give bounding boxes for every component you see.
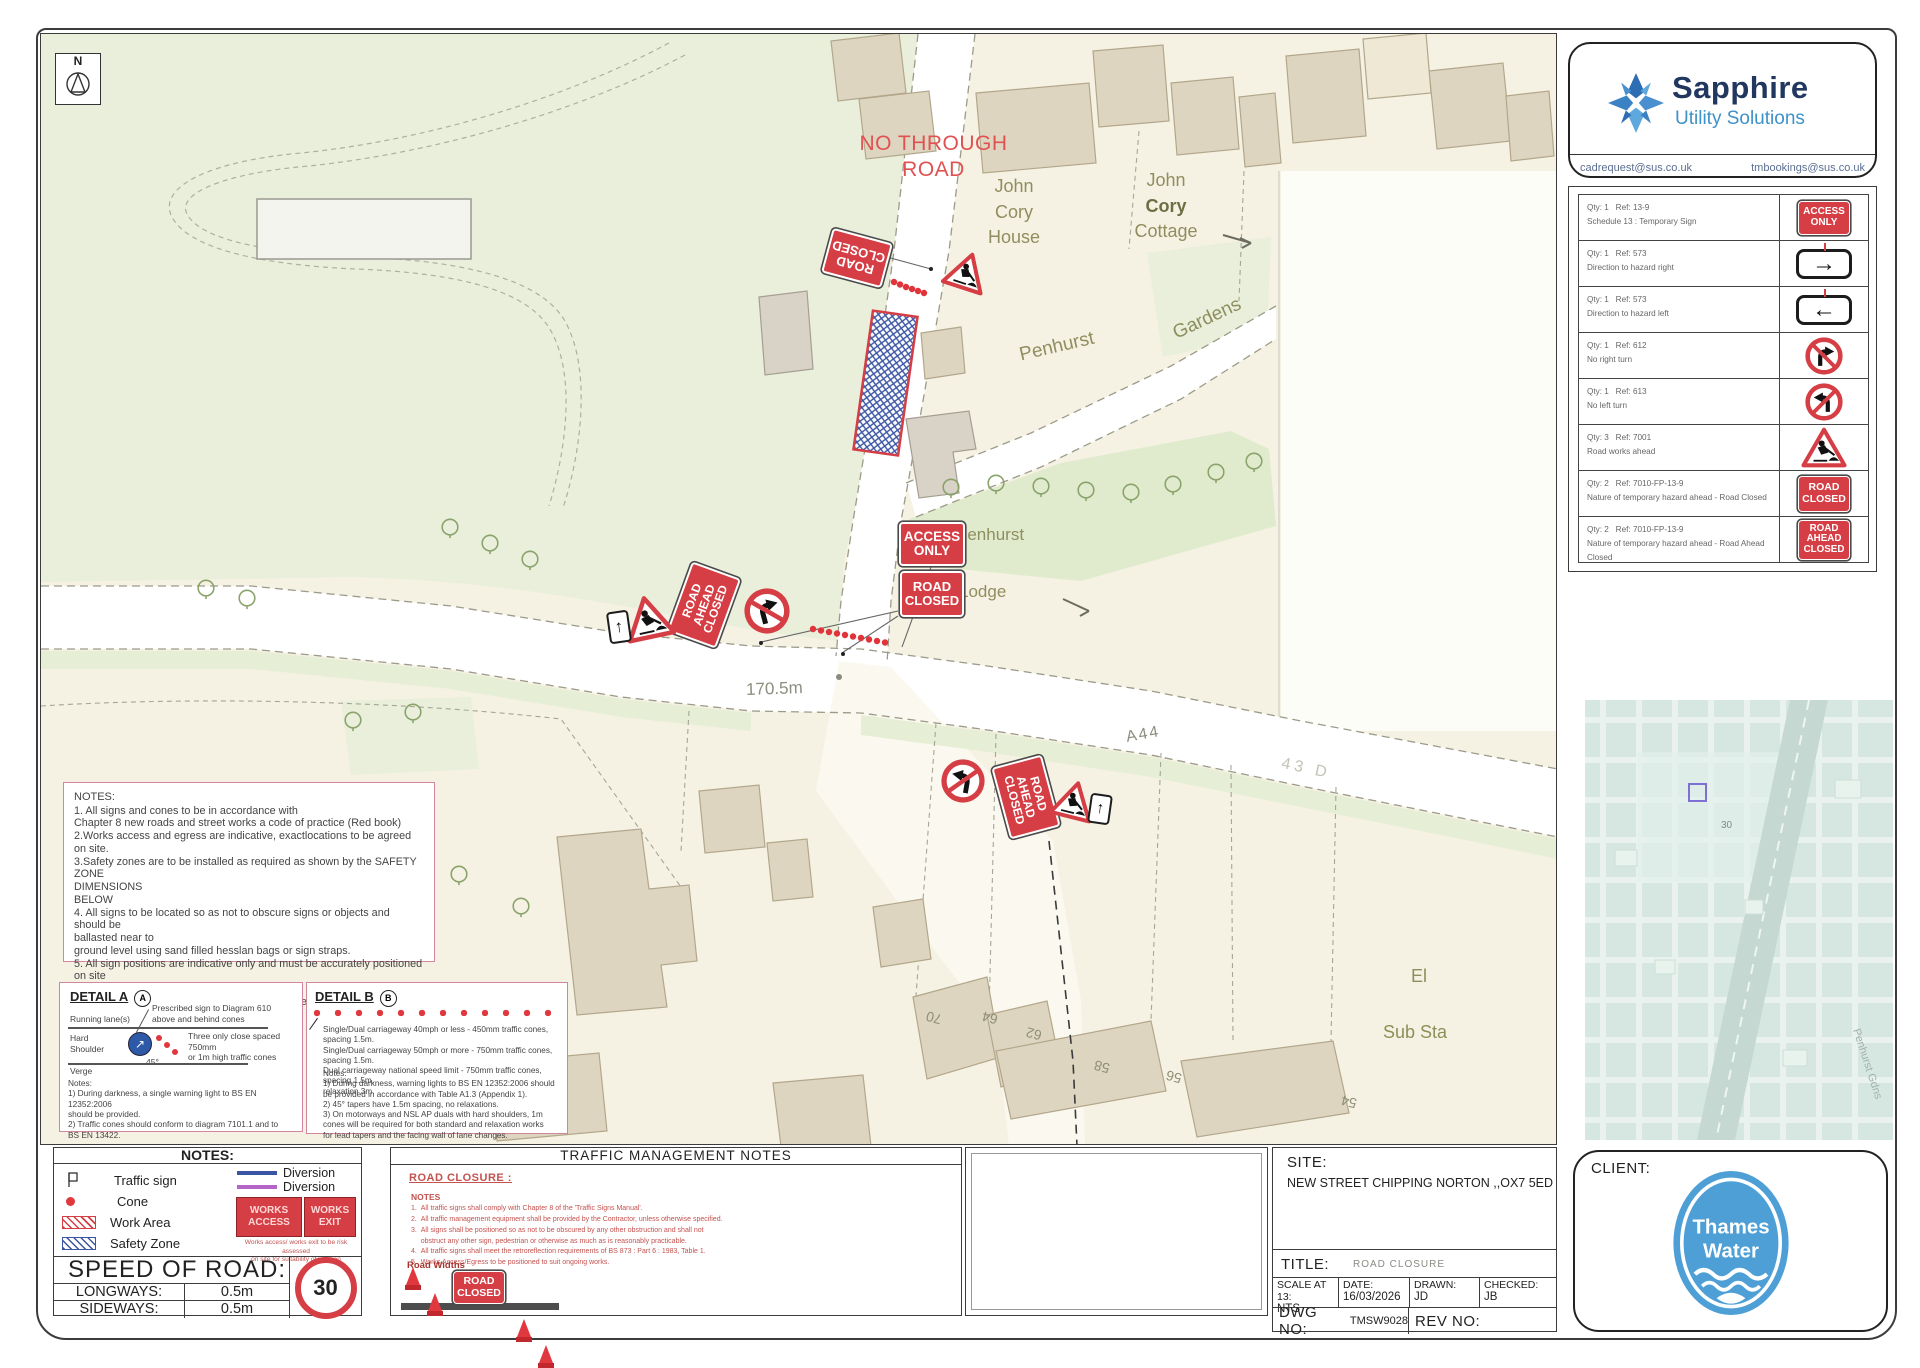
schedule-desc: No left turn: [1587, 399, 1779, 413]
distance-label: 170.5m: [746, 678, 803, 700]
schedule-desc: Nature of temporary hazard ahead - Road …: [1587, 491, 1779, 505]
cone-icon: [405, 1264, 421, 1290]
works-access-box: WORKSACCESS: [236, 1197, 302, 1237]
map-notes-box: NOTES: 1. All signs and cones to be in a…: [63, 782, 435, 962]
schedule-row: Qty: 2 Ref: 7010-FP-13-9Nature of tempor…: [1579, 471, 1868, 517]
traffic-sign-icon: [66, 1172, 78, 1188]
scale-label: SCALE AT 13:: [1277, 1279, 1338, 1303]
client-label: CLIENT:: [1591, 1160, 1650, 1177]
schedule-desc: Schedule 13 : Temporary Sign: [1587, 215, 1779, 229]
schedule-desc: No right turn: [1587, 353, 1779, 367]
legend-cone-label: Cone: [117, 1194, 148, 1209]
schedule-qty: Qty: 2 Ref: 7010-FP-13-9: [1587, 523, 1779, 537]
detail-b-title: DETAIL B: [315, 989, 374, 1004]
speed-limit-30-icon: 30: [295, 1257, 357, 1319]
road-closed-sign-mid: ROADCLOSED: [900, 571, 964, 617]
schedule-qty: Qty: 1 Ref: 13-9: [1587, 201, 1779, 215]
cone-icon: [427, 1290, 443, 1316]
schedule-row: Qty: 3 Ref: 7001Road works ahead: [1579, 425, 1868, 471]
tm-bookings-email: tmbookings@sus.co.uk: [1751, 162, 1865, 174]
work-area-swatch: [62, 1216, 96, 1229]
legend-box: NOTES: Traffic sign Cone Work Area Safet…: [53, 1147, 362, 1316]
keep-ahead-sign-west: ↑: [606, 610, 632, 645]
john-cory-house-label: John Cory House: [944, 174, 1084, 251]
empty-panel: [965, 1147, 1268, 1316]
sapphire-brand-sub: Utility Solutions: [1675, 108, 1805, 130]
detail-b-notes: Notes: 1) During darkness, warning light…: [323, 1069, 555, 1141]
detail-a-callout: Prescribed sign to Diagram 610 above and…: [152, 1003, 271, 1024]
tmn-notes-label: NOTES: [411, 1192, 440, 1202]
date-value: 16/03/2026: [1343, 1291, 1409, 1303]
checked-value: JB: [1484, 1291, 1556, 1303]
roadworks-icon: [1801, 427, 1847, 468]
sign-schedule-box: Qty: 1 Ref: 13-9Schedule 13 : Temporary …: [1568, 186, 1877, 572]
arrow-right-icon: →: [1796, 249, 1852, 279]
svg-text:Thames: Thames: [1692, 1216, 1769, 1238]
tmn-subtitle: ROAD CLOSURE :: [409, 1172, 512, 1184]
drawing-sheet: N NO THROUGH ROAD John Cory House John C…: [0, 0, 1920, 1357]
schedule-row: Qty: 1 Ref: 613No left turn: [1579, 379, 1868, 425]
legend-diversion2-label: Diversion: [283, 1180, 335, 1194]
schedule-row: Qty: 1 Ref: 573Direction to hazard right…: [1579, 241, 1868, 287]
cone-icon: [516, 1316, 532, 1342]
north-label: N: [56, 54, 100, 68]
legend-traffic-sign-label: Traffic sign: [114, 1173, 177, 1188]
legend-safety-zone-label: Safety Zone: [110, 1236, 180, 1251]
schedule-row: Qty: 2 Ref: 7010-FP-13-9Nature of tempor…: [1579, 517, 1868, 562]
schedule-desc: Direction to hazard left: [1587, 307, 1779, 321]
cone-icon: [538, 1342, 554, 1368]
detail-a-cones-note: Three only close spaced 750mm or 1m high…: [188, 1031, 302, 1063]
cone-icon: [66, 1197, 75, 1206]
schedule-desc: Road works ahead: [1587, 445, 1779, 459]
location-inset-map: 30 Penhurst Gdns: [1585, 700, 1893, 1140]
road-ahead-closed-icon: ROADAHEADCLOSED: [1798, 520, 1850, 560]
schedule-qty: Qty: 1 Ref: 613: [1587, 385, 1779, 399]
site-value: NEW STREET CHIPPING NORTON ,,OX7 5ED: [1287, 1176, 1553, 1190]
legend-diversion1-label: Diversion: [283, 1166, 335, 1180]
longways-label: LONGWAYS:: [54, 1284, 185, 1301]
inset-map-drawing: 30 Penhurst Gdns: [1585, 700, 1893, 1140]
schedule-row: Qty: 1 Ref: 612No right turn: [1579, 333, 1868, 379]
schedule-qty: Qty: 1 Ref: 612: [1587, 339, 1779, 353]
sapphire-logo-box: Sapphire Utility Solutions cadrequest@su…: [1568, 42, 1877, 178]
safety-zone-swatch: [62, 1237, 96, 1250]
detail-a-running-lane: Running lane(s): [70, 1014, 130, 1025]
no-right-turn-icon: [1805, 337, 1843, 375]
road-closed-icon: ROADCLOSED: [1798, 476, 1850, 512]
keep-ahead-sign-east: ↑: [1087, 793, 1113, 826]
detail-a-notes: Notes: 1) During darkness, a single warn…: [68, 1078, 302, 1140]
speed-of-road-header: SPEED OF ROAD:: [54, 1257, 289, 1283]
rev-label: REV NO:: [1415, 1313, 1480, 1330]
tmn-header: TRAFFIC MANAGEMENT NOTES: [391, 1148, 961, 1165]
site-label: SITE:: [1287, 1154, 1327, 1171]
sideways-value: 0.5m: [185, 1301, 289, 1318]
traffic-management-notes-box: TRAFFIC MANAGEMENT NOTES ROAD CLOSURE : …: [390, 1147, 962, 1316]
el-sub-sta-label-1: El: [1411, 964, 1427, 990]
legend-header: NOTES:: [54, 1148, 361, 1164]
schedule-qty: Qty: 1 Ref: 573: [1587, 247, 1779, 261]
thames-water-logo: Thames Water: [1671, 1166, 1791, 1320]
schedule-qty: Qty: 1 Ref: 573: [1587, 293, 1779, 307]
no-left-turn-icon: [1805, 383, 1843, 421]
access-only-icon: ACCESSONLY: [1798, 201, 1850, 235]
north-arrow: N: [55, 53, 101, 105]
diversion-blue-line: [237, 1171, 277, 1176]
arrow-left-icon: ←: [1796, 295, 1852, 325]
checked-label: CHECKED:: [1484, 1279, 1556, 1291]
map-notes-title: NOTES:: [74, 791, 424, 805]
schedule-qty: Qty: 2 Ref: 7010-FP-13-9: [1587, 477, 1779, 491]
sapphire-email-row: cadrequest@sus.co.uk tmbookings@sus.co.u…: [1570, 154, 1875, 178]
detail-b-badge: B: [380, 990, 397, 1007]
detail-a-title: DETAIL A: [70, 989, 128, 1004]
client-box: CLIENT: Thames Water: [1573, 1150, 1888, 1332]
svg-text:Water: Water: [1703, 1240, 1759, 1262]
sideways-label: SIDEWAYS:: [54, 1301, 185, 1318]
detail-a-badge: A: [134, 990, 151, 1007]
el-sub-sta-label-2: Sub Sta: [1383, 1020, 1447, 1046]
penhurst-lodge-label-2: Lodge: [959, 580, 1006, 604]
diversion-purple-line: [237, 1185, 277, 1190]
dwg-label: DWG NO:: [1279, 1304, 1345, 1338]
road-closed-graphic-sign: ROADCLOSED: [453, 1271, 505, 1304]
john-cory-cottage-label: John Cory Cottage: [1096, 168, 1236, 245]
detail-a-sign-icon: ↗: [128, 1032, 152, 1056]
works-exit-box: WORKSEXIT: [304, 1197, 356, 1237]
penhurst-lodge-label-1: Penhurst: [956, 523, 1024, 547]
drawn-value: JD: [1414, 1291, 1479, 1303]
drawn-label: DRAWN:: [1414, 1279, 1479, 1291]
detail-b-cone-row: [313, 1009, 563, 1017]
sapphire-brand: Sapphire: [1672, 70, 1809, 106]
date-label: DATE:: [1343, 1279, 1409, 1291]
schedule-desc: Nature of temporary hazard ahead - Road …: [1587, 537, 1779, 565]
title-label: TITLE:: [1281, 1256, 1329, 1273]
sapphire-logo-icon: [1608, 72, 1664, 134]
longways-value: 0.5m: [185, 1284, 289, 1301]
legend-work-area-label: Work Area: [110, 1215, 170, 1230]
dwg-value: TMSW9028: [1350, 1315, 1408, 1327]
title-block: SITE: NEW STREET CHIPPING NORTON ,,OX7 5…: [1272, 1147, 1557, 1332]
detail-b-box: DETAIL BB Single/Dual carriageway 40mph …: [306, 982, 568, 1134]
schedule-row: Qty: 1 Ref: 573Direction to hazard left …: [1579, 287, 1868, 333]
detail-a-verge: Verge: [70, 1066, 92, 1077]
title-value: ROAD CLOSURE: [1353, 1259, 1445, 1270]
north-compass-icon: [64, 69, 92, 99]
schedule-desc: Direction to hazard right: [1587, 261, 1779, 275]
access-only-sign: ACCESSONLY: [899, 522, 965, 566]
detail-a-box: DETAIL AA Prescribed sign to Diagram 610…: [59, 982, 303, 1132]
inset-speed-label: 30: [1721, 820, 1733, 831]
road-widths-graphic: ROADCLOSED: [401, 1270, 561, 1310]
schedule-row: Qty: 1 Ref: 13-9Schedule 13 : Temporary …: [1579, 195, 1868, 241]
cad-request-email: cadrequest@sus.co.uk: [1580, 162, 1692, 174]
no-left-turn-sign-east: [938, 756, 989, 807]
site-map: N NO THROUGH ROAD John Cory House John C…: [40, 33, 1557, 1145]
sign-schedule-table: Qty: 1 Ref: 13-9Schedule 13 : Temporary …: [1578, 194, 1869, 563]
schedule-qty: Qty: 3 Ref: 7001: [1587, 431, 1779, 445]
detail-a-hard-shoulder: Hard Shoulder: [70, 1033, 104, 1054]
